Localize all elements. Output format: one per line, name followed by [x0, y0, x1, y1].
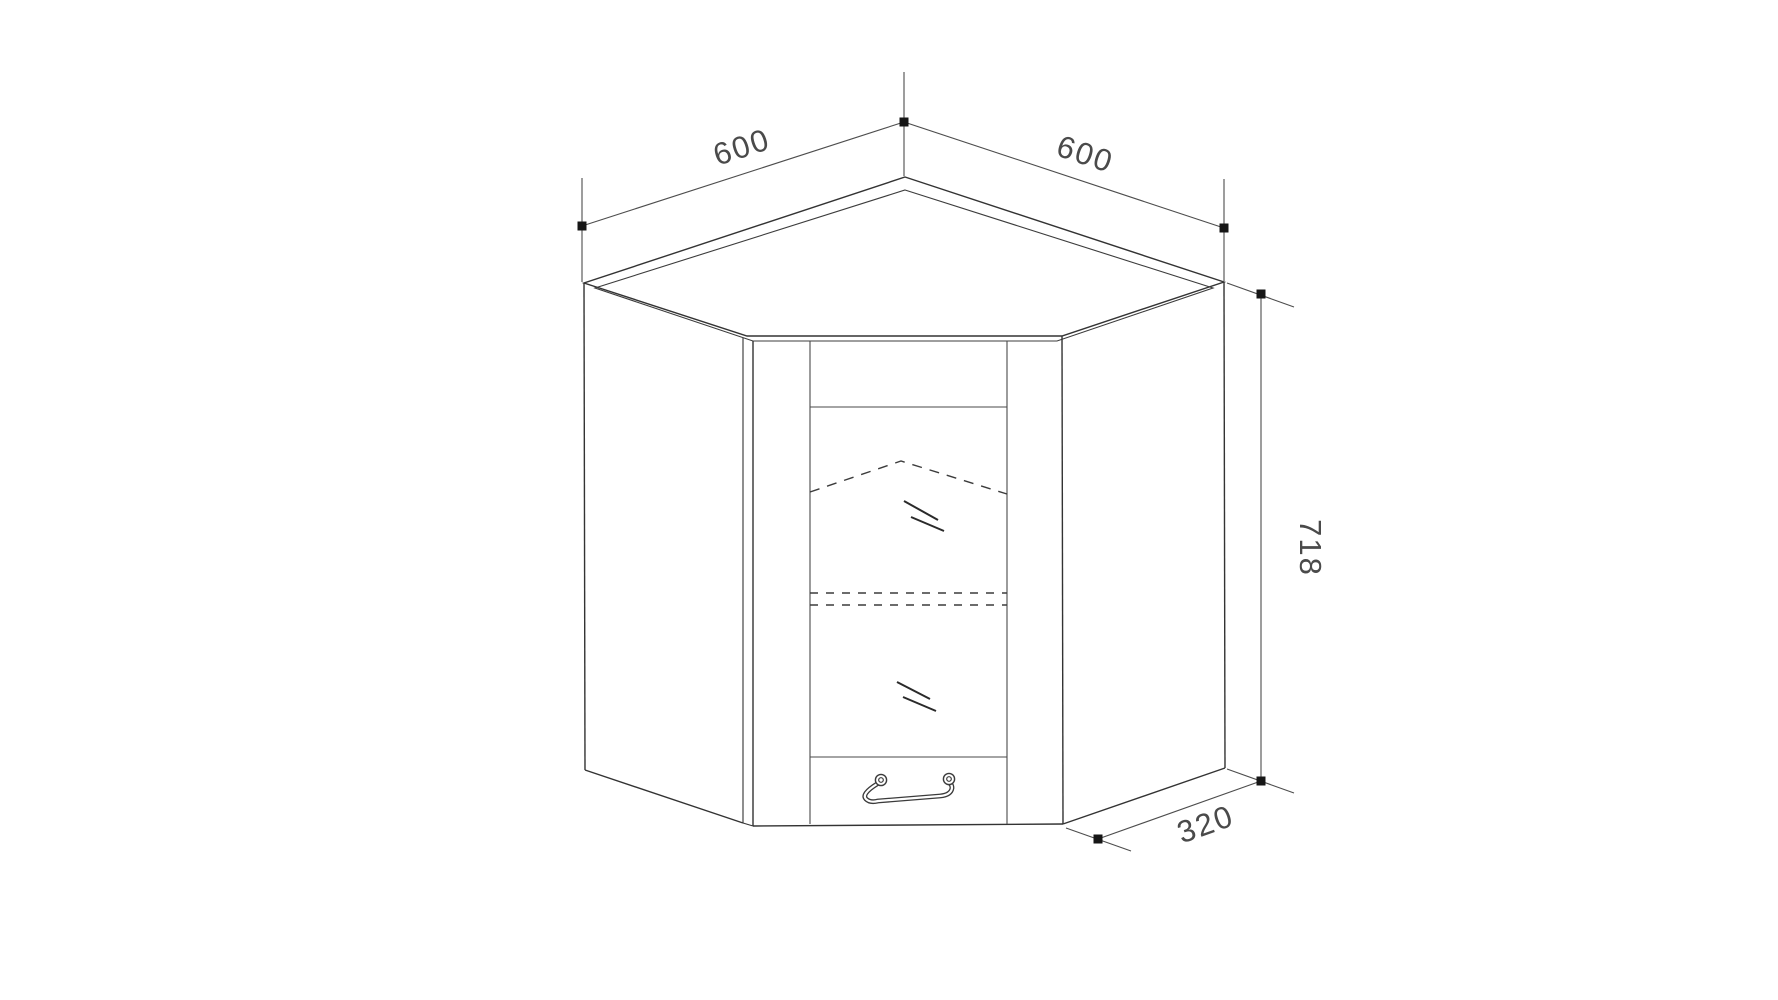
- dim-label-left-width: 600: [709, 121, 775, 172]
- dim-label-right-width: 600: [1052, 128, 1118, 180]
- glass-door: [810, 341, 1007, 824]
- marker-apex: [900, 118, 909, 127]
- dimension-lines: [582, 72, 1294, 851]
- marker-left-width-end: [578, 222, 587, 231]
- handle-left-post-center: [879, 778, 884, 783]
- marker-depth-end: [1094, 835, 1103, 844]
- right-panel-back-edge: [1224, 282, 1225, 768]
- door-handle: [865, 773, 955, 801]
- lower-reflection-stroke-1: [897, 682, 930, 699]
- lower-reflection-stroke-2: [903, 697, 936, 711]
- glass-reflection-marks: [897, 501, 944, 711]
- marker-height-bottom: [1257, 777, 1266, 786]
- corner-cabinet-dimension-drawing: 600 600 718 320: [0, 0, 1778, 1000]
- hidden-shelf-lines: [810, 461, 1007, 605]
- cabinet-technical-drawing: 600 600 718 320: [0, 0, 1778, 1000]
- dimension-labels: 600 600 718 320: [709, 121, 1328, 850]
- top-shelf-hidden-corner-line: [810, 461, 1007, 494]
- marker-right-width-end: [1220, 224, 1229, 233]
- top-face-inner-edge: [595, 190, 1213, 341]
- dim-label-height: 718: [1293, 519, 1328, 577]
- front-right-edge: [1062, 336, 1063, 824]
- left-panel-left-edge: [584, 283, 585, 770]
- front-left-bottom-joint: [743, 823, 753, 826]
- dimension-markers: [578, 118, 1266, 844]
- left-panel-bottom-edge: [585, 770, 743, 823]
- handle-right-post-center: [947, 777, 952, 782]
- top-face-outer-edge: [584, 177, 1224, 336]
- front-bottom-edge: [753, 824, 1063, 826]
- marker-height-top: [1257, 290, 1266, 299]
- upper-reflection-stroke-2: [911, 517, 944, 531]
- dim-label-depth: 320: [1172, 798, 1238, 850]
- upper-reflection-stroke-1: [904, 501, 938, 520]
